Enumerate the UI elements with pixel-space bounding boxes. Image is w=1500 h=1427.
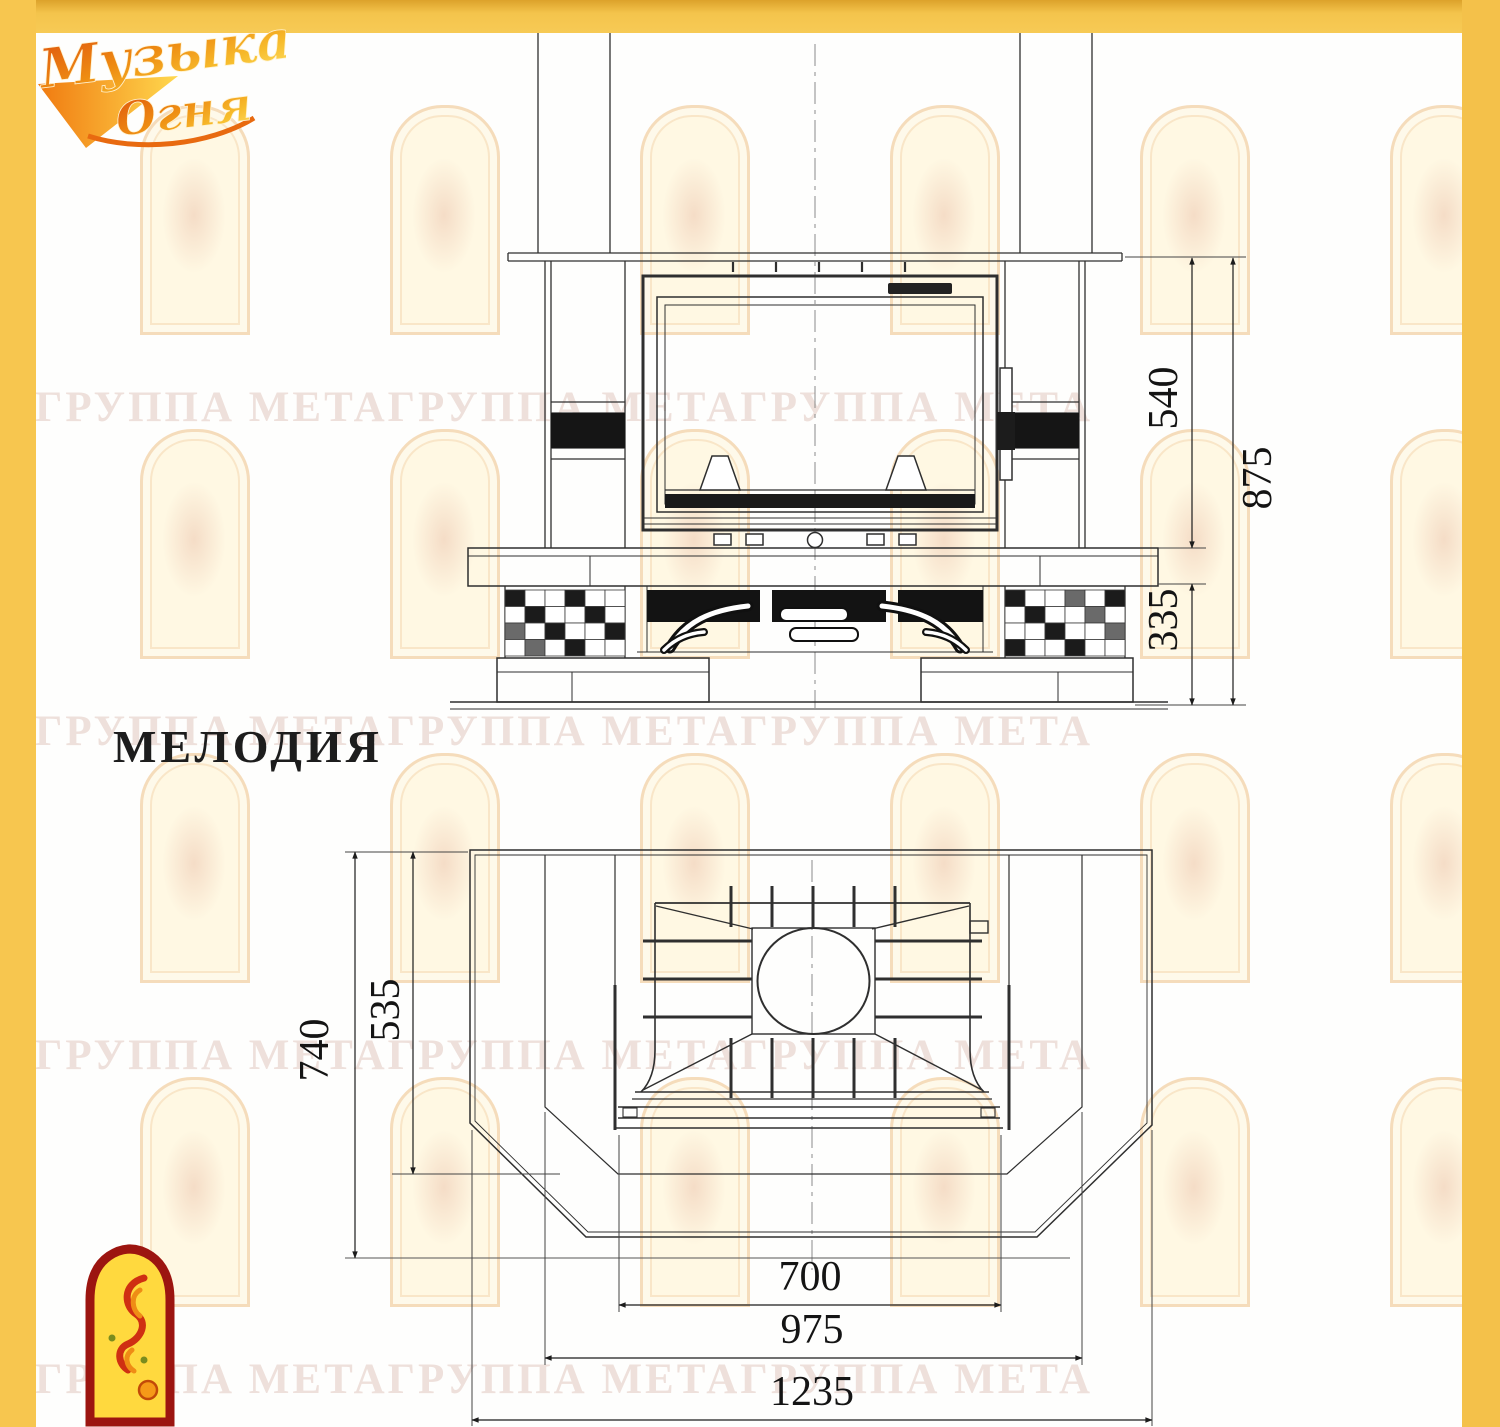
dim-label-875: 875 — [1234, 447, 1282, 510]
muzyka-ognya-logo: Музыка Огня — [26, 20, 286, 165]
vent-row — [714, 533, 916, 548]
plan-firebox — [615, 886, 1003, 1128]
catalog-page: ГРУППА МЕТАГРУППА МЕТАГРУППА МЕТА ГРУППА… — [0, 0, 1500, 1427]
mantel-shelf — [468, 548, 1158, 586]
fireplace-technical-drawing — [0, 0, 1500, 1427]
door-bottom-rail — [665, 494, 975, 508]
andirons — [700, 456, 926, 490]
firebox-door — [643, 276, 997, 530]
dim-label-535: 535 — [362, 979, 410, 1042]
door-brand-mark — [888, 283, 952, 294]
air-knob — [808, 533, 823, 548]
front-view-drawing — [450, 33, 1168, 709]
dim-label-1235: 1235 — [770, 1368, 854, 1416]
dim-label-975: 975 — [781, 1306, 844, 1354]
plan-outer-contour — [470, 850, 1152, 1237]
flue-outlet-circle — [758, 928, 870, 1034]
frame-border-right — [1462, 0, 1500, 1427]
dim-label-335: 335 — [1140, 589, 1188, 652]
plan-view-drawing — [345, 850, 1152, 1270]
dim-label-540: 540 — [1140, 367, 1188, 430]
plan-view-dimensions — [345, 852, 1152, 1426]
page-title: МЕЛОДИЯ — [113, 720, 383, 773]
side-stone-right — [1005, 413, 1079, 448]
meta-stamp-icon — [82, 1238, 178, 1427]
dim-label-700: 700 — [779, 1253, 842, 1301]
side-stone-left — [551, 413, 625, 448]
dim-label-740: 740 — [291, 1019, 339, 1082]
frame-border-left — [0, 0, 36, 1427]
